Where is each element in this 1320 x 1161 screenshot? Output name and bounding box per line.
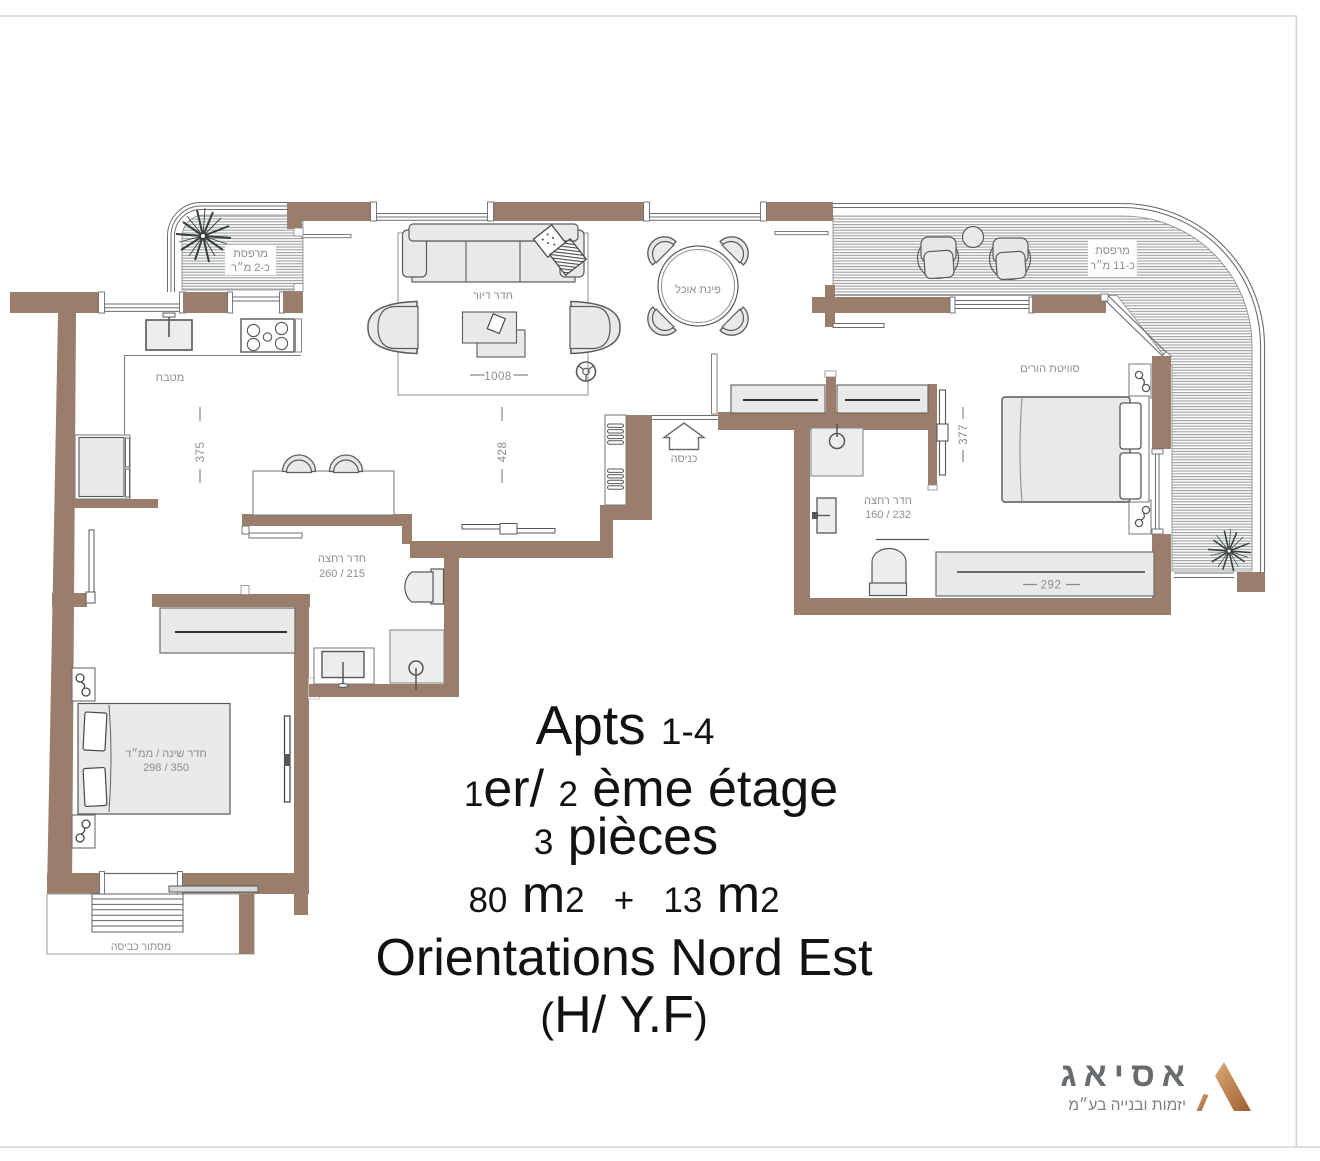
svg-text:160 / 232: 160 / 232	[865, 509, 911, 521]
svg-text:(H/ Y.F): (H/ Y.F)	[540, 986, 708, 1044]
svg-text:1008: 1008	[484, 371, 512, 383]
svg-text:Orientations Nord Est: Orientations Nord Est	[375, 929, 873, 987]
svg-text:פינת אוכל: פינת אוכל	[675, 283, 721, 296]
svg-text:אסיאג: אסיאג	[1060, 1056, 1192, 1094]
svg-text:377: 377	[958, 424, 970, 445]
svg-text:3 pièces: 3 pièces	[534, 808, 718, 866]
svg-text:260 / 215: 260 / 215	[319, 568, 365, 580]
svg-text:יזמות ובנייה בע״מ: יזמות ובנייה בע״מ	[1068, 1097, 1186, 1114]
svg-text:כ-2 מ״ר: כ-2 מ״ר	[231, 261, 270, 274]
svg-text:חדר רחצה: חדר רחצה	[864, 495, 912, 507]
svg-text:כ-11 מ״ר: כ-11 מ״ר	[1090, 259, 1135, 272]
svg-text:חדר דיור: חדר דיור	[473, 290, 513, 302]
svg-text:מטבח: מטבח	[156, 372, 185, 384]
svg-text:375: 375	[195, 442, 207, 463]
svg-text:מרפסת: מרפסת	[1095, 245, 1130, 257]
svg-text:חדר שינה / ממ״ד: חדר שינה / ממ״ד	[125, 747, 206, 760]
svg-text:298 / 350: 298 / 350	[143, 762, 189, 774]
svg-text:428: 428	[497, 442, 509, 463]
svg-text:חדר רחצה: חדר רחצה	[318, 553, 366, 565]
svg-text:292: 292	[1041, 580, 1062, 592]
svg-text:מרפסת: מרפסת	[233, 248, 268, 260]
svg-text:מסתור כביסה: מסתור כביסה	[111, 941, 171, 953]
svg-text:סוויטת הורים: סוויטת הורים	[1020, 363, 1079, 375]
svg-text:כניסה: כניסה	[671, 453, 698, 465]
